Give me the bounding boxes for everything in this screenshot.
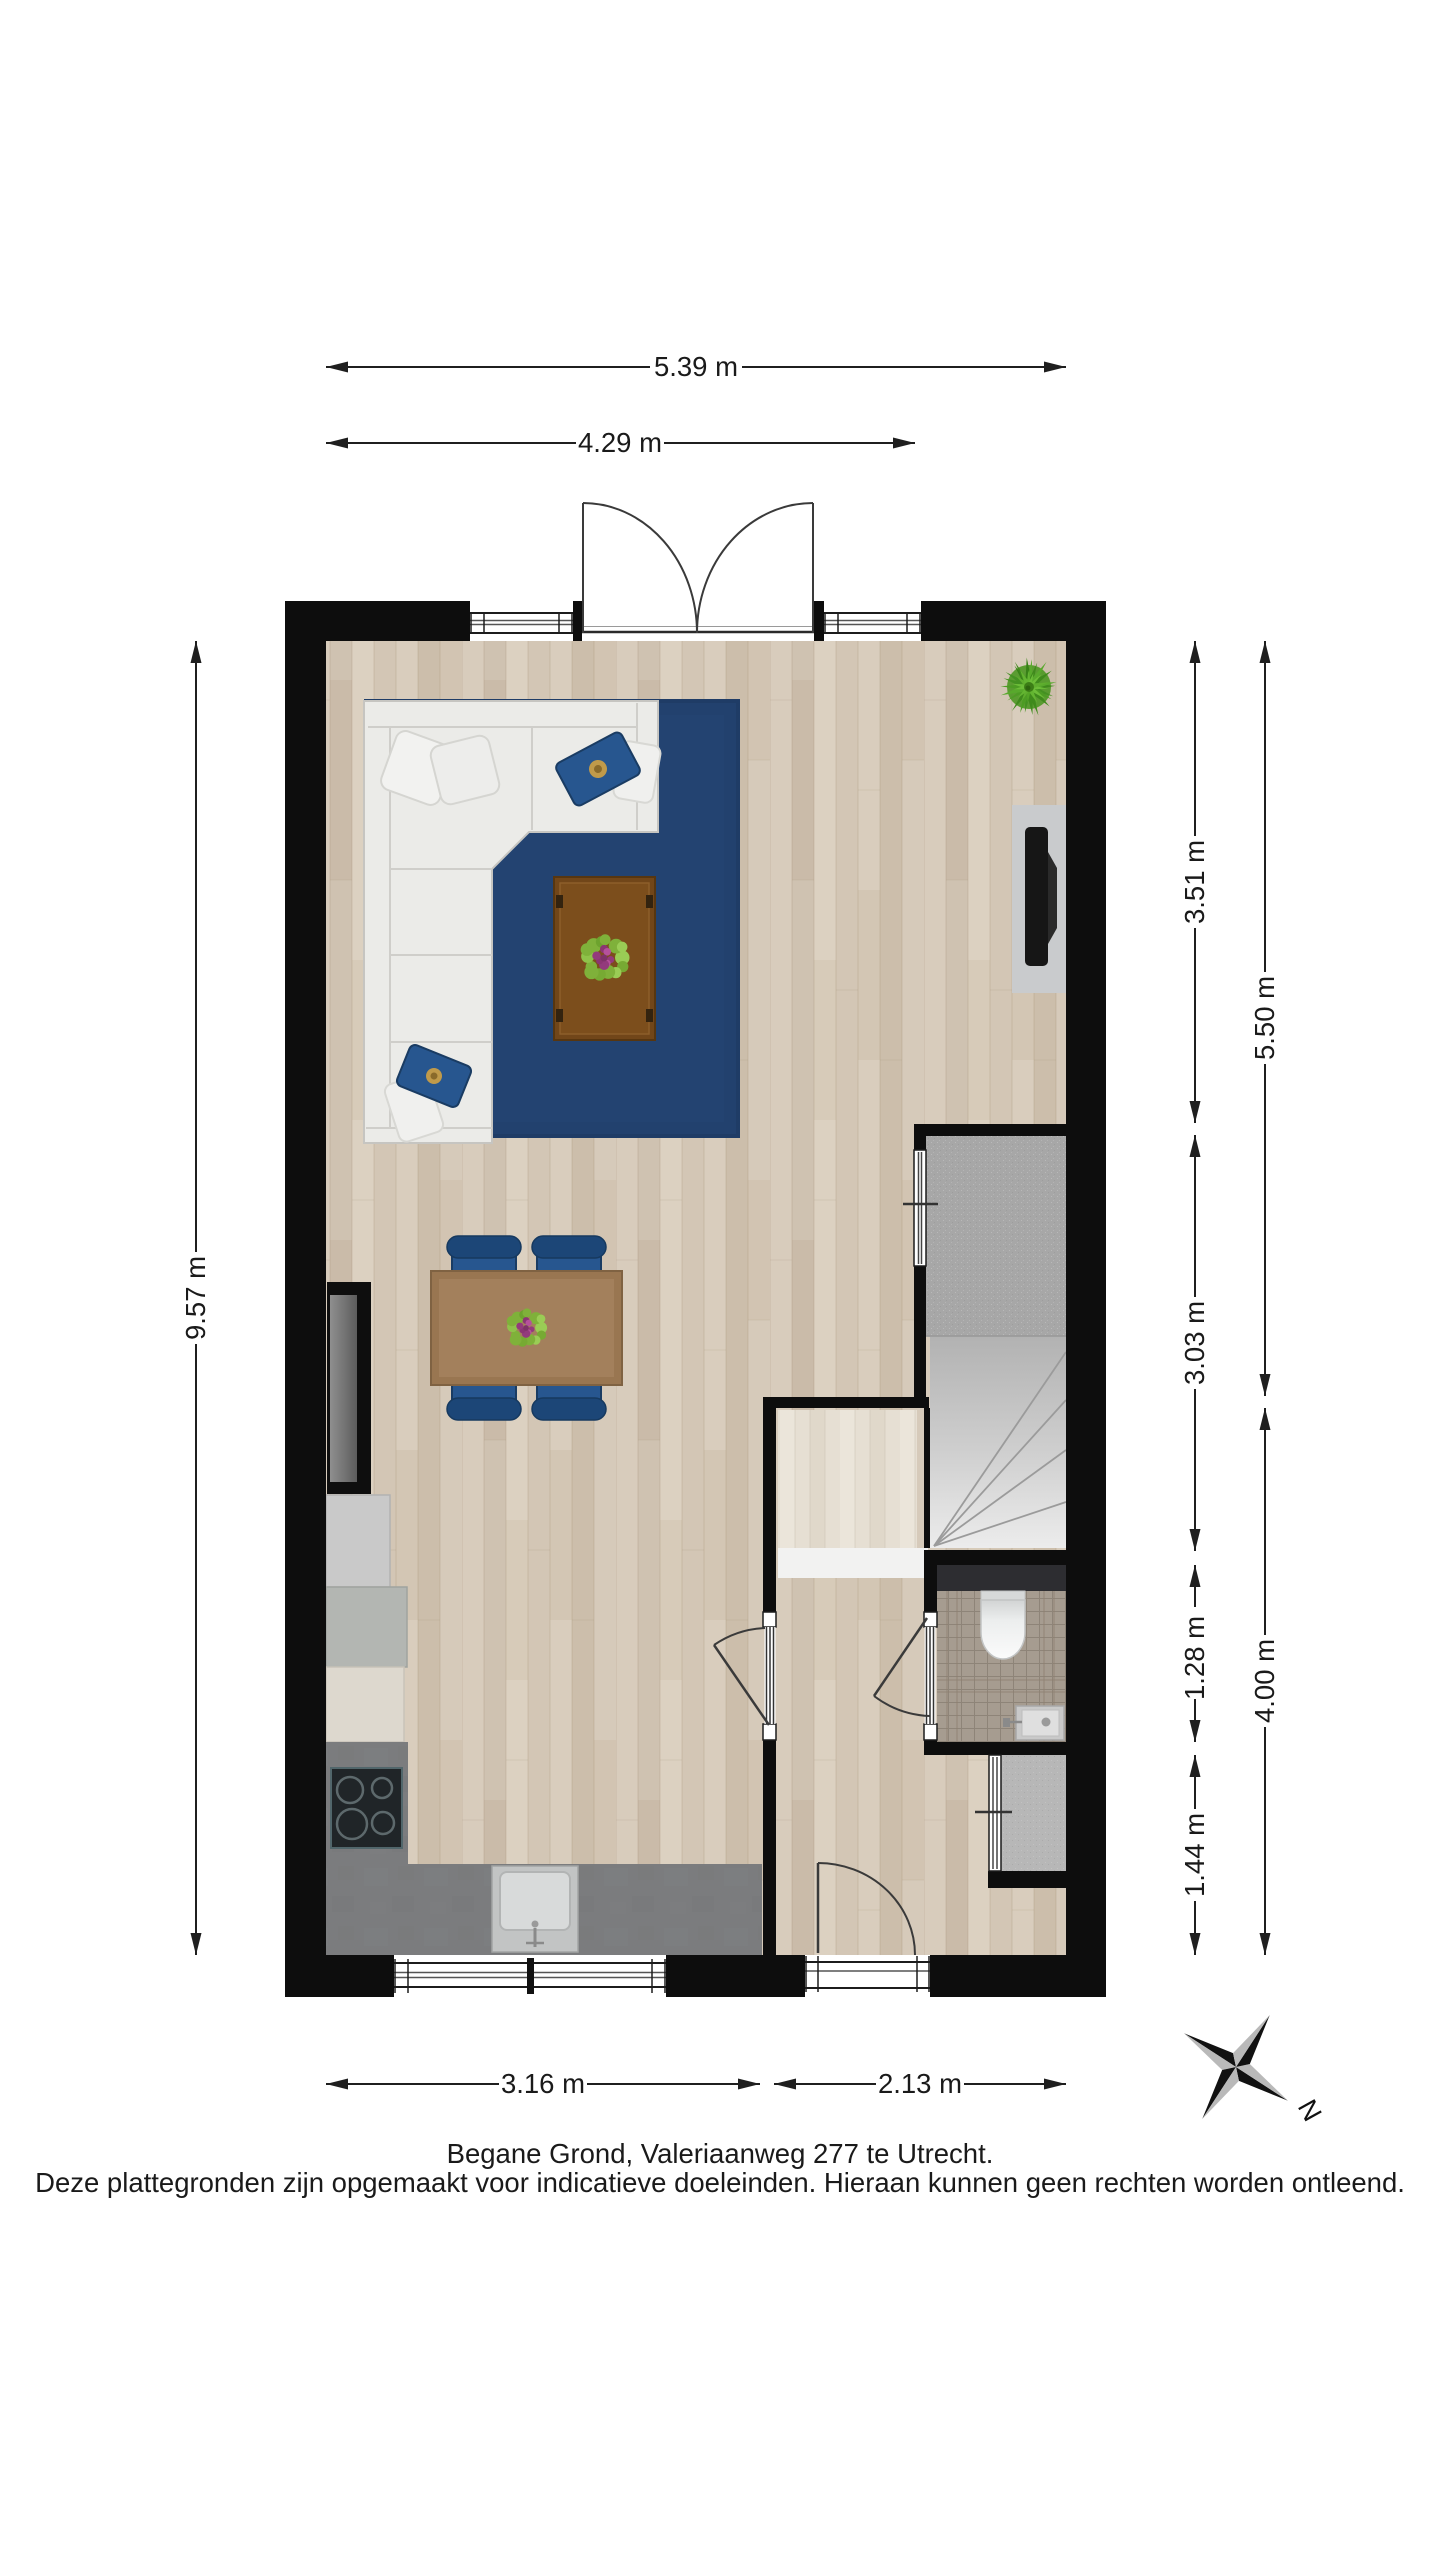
- svg-text:2.13 m: 2.13 m: [878, 2068, 962, 2099]
- svg-text:5.50 m: 5.50 m: [1249, 976, 1280, 1060]
- svg-text:5.39 m: 5.39 m: [654, 351, 738, 382]
- svg-text:3.03 m: 3.03 m: [1179, 1301, 1210, 1385]
- svg-text:4.29 m: 4.29 m: [578, 427, 662, 458]
- svg-text:1.44 m: 1.44 m: [1179, 1813, 1210, 1897]
- svg-text:Deze plattegronden zijn opgema: Deze plattegronden zijn opgemaakt voor i…: [35, 2167, 1405, 2198]
- svg-text:3.51 m: 3.51 m: [1179, 840, 1210, 924]
- svg-text:4.00 m: 4.00 m: [1249, 1639, 1280, 1723]
- svg-text:1.28 m: 1.28 m: [1179, 1616, 1210, 1700]
- svg-text:9.57 m: 9.57 m: [180, 1256, 211, 1340]
- svg-text:3.16 m: 3.16 m: [501, 2068, 585, 2099]
- svg-text:Begane Grond, Valeriaanweg 277: Begane Grond, Valeriaanweg 277 te Utrech…: [447, 2138, 994, 2169]
